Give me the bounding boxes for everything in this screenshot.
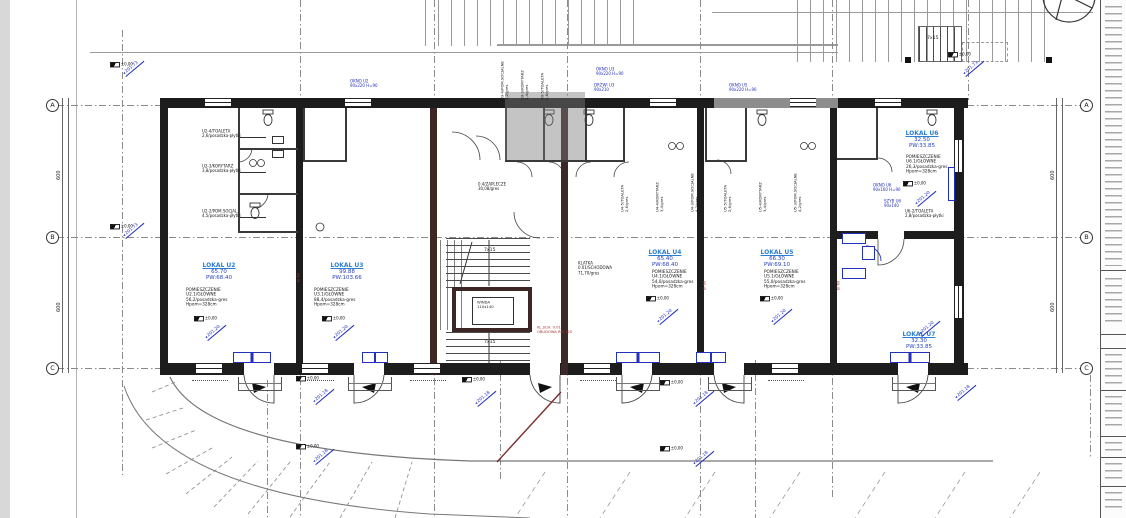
- unit-desc-u5: POMIESZCZENIE U5.1/GŁÓWNE 55,0/posadzka-…: [764, 270, 805, 289]
- stair-flight-count: 7x15: [484, 340, 496, 345]
- window: [196, 363, 222, 374]
- rotated-room-label: U4-5/TOALETA 2,6/gres: [620, 165, 629, 212]
- north-wall-light-segment: [714, 98, 838, 108]
- unit-pw: PW:68.40: [190, 275, 248, 281]
- rotated-room-label: U3-5/TOALETA 2,6/gres: [540, 53, 549, 100]
- unit-desc-u4: POMIESZCZENIE U4.1/GŁÓWNE 54,0/posadzka-…: [652, 270, 693, 289]
- door-opening: [878, 231, 904, 239]
- level-flag-icon: [646, 296, 656, 301]
- window: [414, 363, 440, 374]
- notes-text-column: [1105, 442, 1122, 452]
- unit-desc-u2: POMIESZCZENIE U2.1/GŁÓWNE 56,2/posadzka-…: [186, 288, 227, 307]
- shaft-symbol: [842, 268, 866, 279]
- unit-pw: PW:69.10: [748, 262, 806, 268]
- unit-label-u5: LOKAL U5 66.30 PW:69.10: [748, 249, 806, 268]
- unit-pw: PW:33.85: [893, 143, 951, 149]
- leader-line: [240, 217, 266, 218]
- washbasin: [272, 136, 284, 144]
- unit-pw: PW:68.40: [636, 262, 694, 268]
- level-flag-icon: [296, 376, 306, 381]
- rotated-room-label: U4-3/POM.SOCJALNE 4,2/gres: [690, 165, 699, 212]
- fire-rating-label: EI 60: [702, 281, 706, 290]
- notes-text-column: [1105, 6, 1122, 266]
- window-east: [954, 140, 963, 172]
- level-marker: ±0,00: [194, 316, 217, 321]
- dimension-ticks: [410, 380, 446, 381]
- unit-name: LOKAL U5: [748, 249, 806, 256]
- partition: [876, 108, 878, 160]
- level-flag-icon: [194, 316, 204, 321]
- partition: [745, 108, 747, 162]
- level-marker: ±0,00: [660, 380, 683, 385]
- level-marker: ±0,00: [903, 181, 926, 186]
- title-block-sliver: [1100, 0, 1126, 518]
- entry-steps: [892, 377, 936, 391]
- partition: [837, 158, 878, 160]
- room-label: U6-2/TOALETA 2,8/posadzka-płytki: [905, 210, 944, 220]
- floor-plan-sheet: 7x15 600 600 600 600 A B C A B C: [0, 0, 1126, 518]
- core-wall-west: [430, 108, 437, 375]
- window-note: DRZWI U3 90x210: [594, 84, 614, 93]
- window-note: OKNO U5 90x220 H=90: [729, 84, 756, 93]
- unit-name: LOKAL U2: [190, 262, 248, 269]
- level-flag-icon: [660, 380, 670, 385]
- unit-desc-u6: POMIESZCZENIE U6.1/GŁÓWNE 26,3/posadzka-…: [906, 155, 947, 174]
- room-label: U2-2/POM.SOCJAL. 4,5/posadzka-płytki: [202, 210, 241, 220]
- stair-fire-note: KL.SCH. 0.01 OBUDOWA REI 120: [537, 326, 572, 334]
- grid-bubble-C-right: C: [1080, 362, 1093, 375]
- window: [345, 98, 371, 107]
- washbasin: [272, 150, 284, 158]
- corridor-label: 0.4/ZAPLECZE 30,08/gres: [478, 183, 506, 193]
- leader-line: [240, 137, 266, 138]
- partition: [303, 108, 305, 162]
- window-note: OKNO U3 90x220 H=90: [596, 68, 623, 77]
- unit-desc-u3: POMIESZCZENIE U3.1/GŁÓWNE 88,4/posadzka-…: [314, 288, 355, 307]
- party-wall: [830, 108, 837, 363]
- lift-label: WINDA 110x140: [477, 300, 494, 309]
- partition: [303, 160, 347, 162]
- party-wall: [296, 108, 303, 363]
- partition: [505, 160, 625, 162]
- level-flag-icon: [110, 62, 120, 67]
- entry-steps: [238, 377, 282, 391]
- door-opening: [898, 363, 928, 375]
- grid-bubble-C-left: C: [46, 362, 59, 375]
- unit-label-u3: LOKAL U3 99.88 PW:103.66: [318, 262, 376, 281]
- pavement-hatch: [515, 472, 1040, 518]
- window: [790, 98, 816, 107]
- window: [772, 363, 798, 374]
- level-marker: ±0,00: [322, 316, 345, 321]
- partition: [705, 160, 747, 162]
- unit-name: LOKAL U4: [636, 249, 694, 256]
- window-note: SZYB U6 90x140: [884, 200, 901, 209]
- door-opening: [714, 363, 744, 375]
- notes-text-column: [1105, 463, 1122, 481]
- window: [302, 363, 328, 374]
- level-marker: ±0,00: [296, 376, 319, 381]
- unit-pw: PW:103.66: [318, 275, 376, 281]
- dimension-ticks: [192, 380, 228, 381]
- unit-label-u2: LOKAL U2 65.70 PW:68.40: [190, 262, 248, 281]
- sidewalk-step-hatch: [146, 381, 412, 518]
- door-opening: [622, 363, 652, 375]
- section-cut-line: [497, 392, 561, 462]
- north-arrow-icon: [1043, 0, 1095, 22]
- level-flag-icon: [948, 52, 958, 57]
- unit-label-u4: LOKAL U4 65.40 PW:68.40: [636, 249, 694, 268]
- unit-label-u6: LOKAL U6 32.50 PW:33.85: [893, 130, 951, 149]
- fire-rating-label: EI 60: [296, 273, 300, 282]
- door-opening: [530, 363, 560, 375]
- window: [584, 363, 610, 374]
- partition: [345, 108, 347, 162]
- level-marker: ±0,00: [462, 377, 485, 382]
- sidewalk-curves: [124, 377, 993, 518]
- grid-bubble-B-right: B: [1080, 231, 1093, 244]
- partition: [238, 231, 298, 233]
- entry-door-symbol: [233, 352, 271, 363]
- window-note: OKNO U2 90x220 H=90: [350, 80, 377, 89]
- level-flag-icon: [903, 181, 913, 186]
- entry-steps: [616, 377, 660, 391]
- window: [875, 98, 901, 107]
- level-marker: ±0,00: [296, 444, 319, 449]
- level-marker: ±0,00: [760, 296, 783, 301]
- grid-bubble-A-right: A: [1080, 99, 1093, 112]
- window: [205, 98, 231, 107]
- entry-steps: [348, 377, 392, 391]
- partition: [585, 108, 587, 162]
- rotated-room-label: U5-5/TOALETA 2,6/gres: [723, 165, 732, 212]
- rotated-room-label: U3-3/KORYTARZ 3,4/gres: [520, 53, 529, 100]
- room-label: U2-3/KORYTARZ 3,8/posadzka-płytki: [202, 165, 241, 175]
- gray-overlay: [505, 92, 585, 160]
- shaft-symbol: [862, 246, 875, 260]
- level-flag-icon: [760, 296, 770, 301]
- level-flag-icon: [110, 224, 120, 229]
- rotated-room-label: U5-3/POM.SOCJALNE 4,2/gres: [793, 165, 802, 212]
- door-opening: [354, 363, 384, 375]
- west-wall: [160, 98, 168, 375]
- window-note: OKNO U6 90x160 H=90: [873, 184, 900, 193]
- east-wall-blue-window: [948, 167, 955, 201]
- stairhall-label: KLATKA 0.01/SCHODOWA 71,70/gres: [578, 262, 612, 276]
- leader-line: [240, 172, 266, 173]
- level-flag-icon: [322, 316, 332, 321]
- level-flag-icon: [296, 444, 306, 449]
- partition: [238, 148, 298, 150]
- external-stair-label: 7x15: [927, 36, 939, 41]
- notes-text-column: [1105, 354, 1122, 384]
- door-opening: [244, 363, 274, 375]
- notes-text-column: [1105, 278, 1122, 326]
- level-flag-icon: [660, 446, 670, 451]
- grid-bubble-B-left: B: [46, 231, 59, 244]
- rotated-room-label: U4-4/KORYTARZ 3,4/gres: [655, 165, 664, 212]
- stair-flight-count: 7x15: [484, 248, 496, 253]
- entry-door-symbol: [890, 352, 930, 363]
- unit-name: LOKAL U3: [318, 262, 376, 269]
- level-marker: ±0,00: [646, 296, 669, 301]
- party-wall: [697, 108, 704, 363]
- fire-rating-label: EI 60: [836, 281, 840, 290]
- partition: [705, 108, 707, 162]
- entry-door-symbol: [616, 352, 660, 363]
- level-marker: ±0,00: [948, 52, 971, 57]
- level-flag-icon: [462, 377, 472, 382]
- entry-steps: [708, 377, 752, 391]
- notes-text-column: [1105, 396, 1122, 430]
- window-east: [954, 286, 963, 318]
- entry-door-symbol: [696, 352, 726, 363]
- notes-text-column: [1105, 492, 1122, 512]
- dimension-ticks: [580, 380, 616, 381]
- partition: [623, 108, 625, 162]
- shaft-symbol: [842, 233, 866, 244]
- level-marker: ±0,00: [660, 446, 683, 451]
- window: [650, 98, 676, 107]
- rotated-room-label: U5-4/KORYTARZ 3,4/gres: [758, 165, 767, 212]
- room-label: U2-4/TOALETA 2,6/posadzka-płytki: [202, 130, 241, 140]
- dimension-ticks: [768, 380, 804, 381]
- unit-name: LOKAL U6: [893, 130, 951, 137]
- partition: [238, 193, 298, 195]
- unit-pw: PW:33.85: [890, 344, 948, 350]
- entry-door-symbol: [362, 352, 388, 363]
- grid-bubble-A-left: A: [46, 99, 59, 112]
- rotated-room-label: U3-4/POM.SOCJALNE 4,2/gres: [500, 53, 509, 100]
